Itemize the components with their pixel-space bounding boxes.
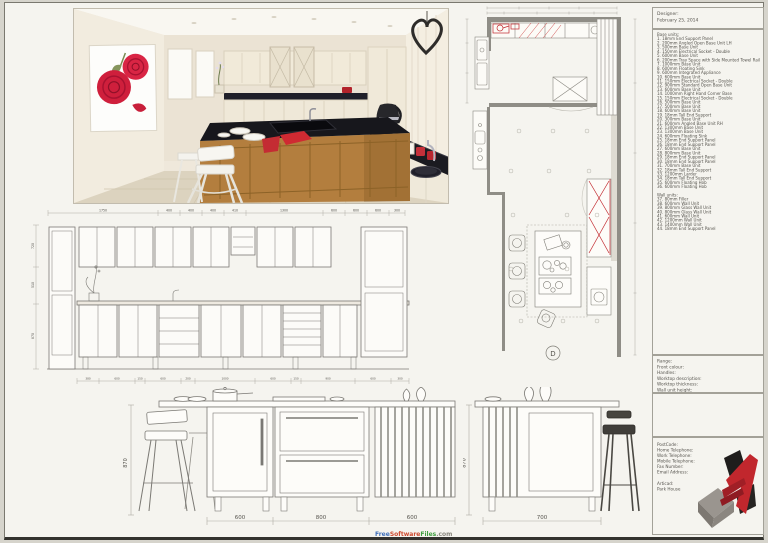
island-base bbox=[483, 407, 601, 497]
tap bbox=[173, 290, 179, 301]
svg-text:400: 400 bbox=[210, 209, 216, 213]
svg-text:410: 410 bbox=[232, 209, 238, 213]
base-units bbox=[79, 305, 357, 357]
height-dim-label: 870 bbox=[123, 458, 129, 468]
kitchen-photo bbox=[73, 8, 449, 204]
plate bbox=[330, 397, 344, 401]
svg-text:300: 300 bbox=[394, 209, 400, 213]
svg-text:870: 870 bbox=[31, 333, 35, 339]
height-dim-label: 870 bbox=[463, 458, 468, 468]
worktop bbox=[159, 401, 455, 407]
svg-text:720: 720 bbox=[31, 243, 35, 249]
bowl bbox=[218, 133, 230, 137]
svg-text:900: 900 bbox=[325, 377, 331, 381]
elevation-bottom-dim-labels: 380 600 150 600 200 1000 600 150 900 600… bbox=[85, 377, 403, 381]
island-feet bbox=[215, 497, 363, 511]
svg-text:1000: 1000 bbox=[221, 377, 228, 381]
svg-text:150: 150 bbox=[293, 377, 299, 381]
svg-text:600: 600 bbox=[370, 377, 376, 381]
svg-text:200: 200 bbox=[185, 377, 191, 381]
watermark-software: Software bbox=[390, 531, 421, 538]
plan-larder-red bbox=[582, 179, 611, 257]
svg-text:380: 380 bbox=[85, 377, 91, 381]
plate bbox=[485, 397, 501, 401]
svg-text:600: 600 bbox=[407, 515, 418, 521]
wall-unit-item: 44. 18mm End Support Panel bbox=[657, 227, 764, 231]
island-elevation-left: 870 600 800 600 bbox=[123, 387, 458, 537]
drawer-unit bbox=[275, 407, 369, 497]
elevation-left-dim-labels: 720 510 870 bbox=[31, 243, 35, 339]
tall-vases bbox=[525, 387, 552, 401]
svg-text:600: 600 bbox=[235, 515, 246, 521]
watermark-dotcom: .com bbox=[436, 531, 452, 538]
svg-text:400: 400 bbox=[166, 209, 172, 213]
window bbox=[168, 49, 192, 99]
watermark-files: Files bbox=[420, 531, 436, 538]
svg-text:510: 510 bbox=[31, 282, 35, 288]
design-sheet-page: D 1750 400 400 400 410 1300 600 600 600 … bbox=[0, 0, 768, 543]
designer-box: Designer: February 25, 2014 bbox=[652, 7, 764, 29]
red-accessory bbox=[342, 87, 352, 93]
elevation-cabinets bbox=[47, 227, 409, 369]
plan-sheet: D 1750 400 400 400 410 1300 600 600 600 … bbox=[4, 2, 764, 540]
kitchen-photo-render bbox=[74, 9, 448, 203]
plan-right-counter bbox=[587, 267, 611, 315]
island-elevation-right: 870 700 bbox=[463, 387, 648, 537]
detail-marker-label: D bbox=[550, 350, 555, 358]
worktop bbox=[475, 401, 619, 407]
svg-text:600: 600 bbox=[331, 209, 337, 213]
vases bbox=[403, 387, 425, 401]
empty-box bbox=[652, 393, 764, 437]
contact-box: PostCode:Home Telephone:Work Telephone:M… bbox=[652, 437, 764, 535]
plan-upper-counters bbox=[475, 19, 617, 115]
svg-text:600: 600 bbox=[114, 377, 120, 381]
articad-logo-icon bbox=[696, 450, 760, 530]
slatted-panel bbox=[375, 407, 455, 497]
svg-text:600: 600 bbox=[270, 377, 276, 381]
width-dim-label: 700 bbox=[537, 515, 548, 521]
dark-bar-stool bbox=[601, 411, 639, 511]
plan-bottom-island bbox=[509, 225, 587, 329]
svg-text:300: 300 bbox=[397, 377, 403, 381]
plate bbox=[188, 397, 206, 402]
plan-detail-marker: D bbox=[546, 346, 560, 360]
cooking-pot bbox=[213, 387, 253, 401]
door-handle bbox=[261, 419, 263, 465]
svg-text:600: 600 bbox=[375, 209, 381, 213]
spec-box: Range:Front colour:Handles:Worktop descr… bbox=[652, 355, 764, 393]
hob-strip bbox=[273, 397, 325, 401]
svg-text:150: 150 bbox=[137, 377, 143, 381]
watermark-free: Free bbox=[375, 531, 390, 538]
red-tea-towel bbox=[262, 136, 280, 153]
design-date: February 25, 2014 bbox=[657, 18, 764, 25]
counter-orchid bbox=[86, 266, 100, 301]
cabinet-feet bbox=[83, 357, 356, 369]
plan-lower-left-counter bbox=[473, 111, 487, 169]
plan-shading bbox=[611, 111, 617, 261]
wall-units-list: 37. 80mm Filler38. 600mm Wall Unit39. 80… bbox=[657, 198, 764, 232]
rose-artwork bbox=[89, 44, 156, 131]
plate bbox=[243, 134, 265, 141]
island-right-drawing bbox=[475, 387, 639, 511]
units-list-box: Base units: 1. 18mm End Support Panel2. … bbox=[652, 29, 764, 355]
svg-text:600: 600 bbox=[160, 377, 166, 381]
island-left-width-labels: 600 800 600 bbox=[235, 515, 418, 521]
red-mug bbox=[416, 147, 425, 156]
elevation-top-dim-labels: 1750 400 400 400 410 1300 600 600 600 30… bbox=[99, 209, 400, 213]
spec-labels: Range:Front colour:Handles:Worktop descr… bbox=[657, 359, 764, 393]
elevation-drawing: 1750 400 400 400 410 1300 600 600 600 30… bbox=[23, 205, 423, 393]
plate bbox=[230, 128, 250, 134]
wall-units bbox=[79, 227, 331, 267]
window bbox=[196, 51, 214, 97]
island-left-drawing bbox=[139, 387, 455, 511]
svg-text:800: 800 bbox=[316, 515, 327, 521]
svg-text:1750: 1750 bbox=[99, 209, 107, 213]
watermark-link[interactable]: FreeSoftwareFiles.com bbox=[375, 531, 530, 543]
svg-text:400: 400 bbox=[188, 209, 194, 213]
svg-text:1300: 1300 bbox=[280, 209, 288, 213]
floor-plan: D bbox=[449, 3, 649, 365]
svg-text:600: 600 bbox=[353, 209, 359, 213]
base-units-list: 1. 18mm End Support Panel2. 200mm Angled… bbox=[657, 37, 764, 189]
